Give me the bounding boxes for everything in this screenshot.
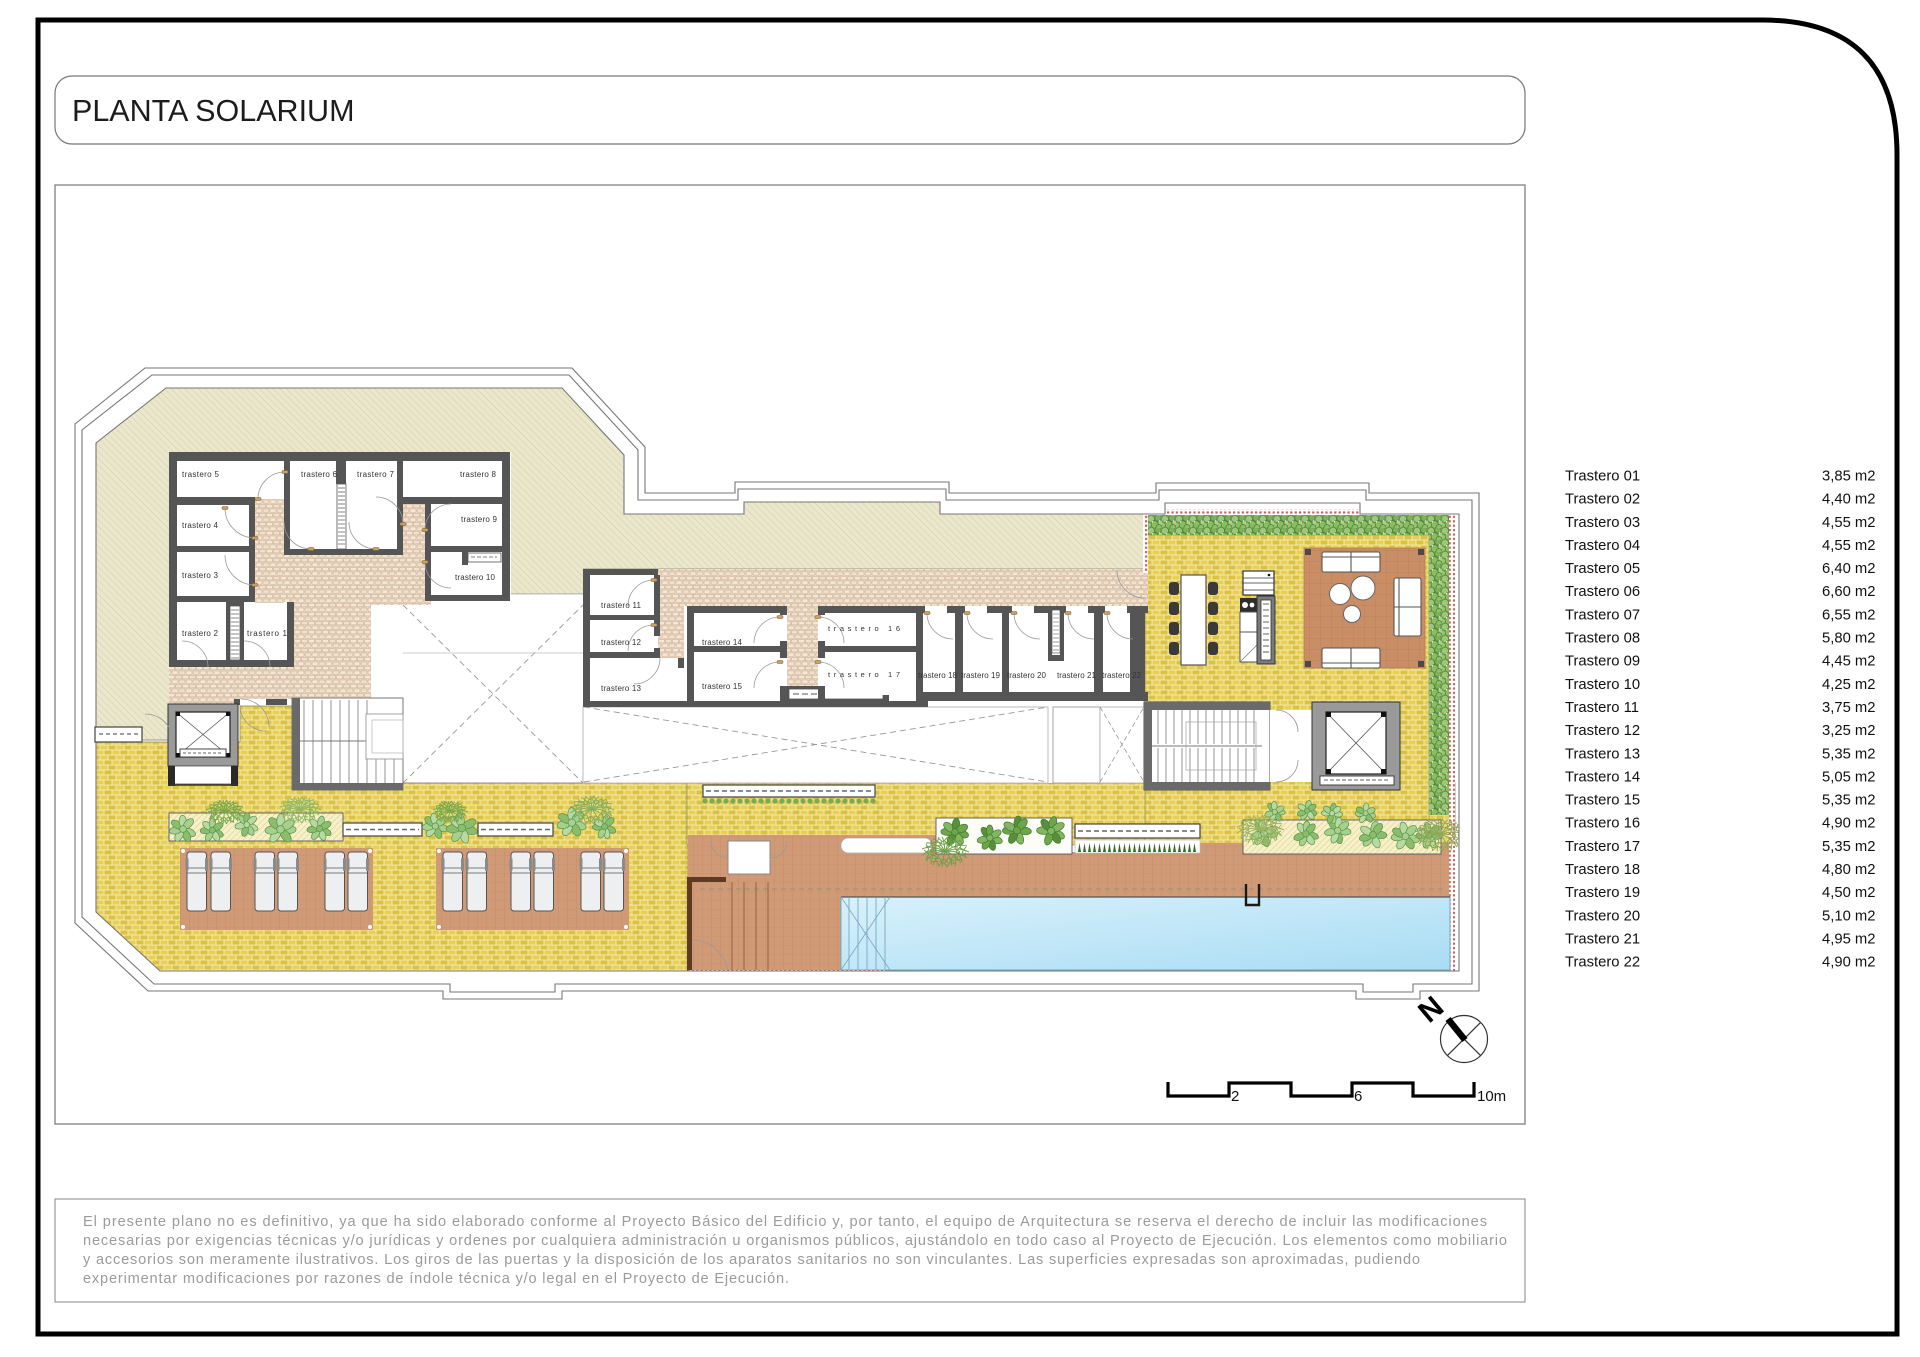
svg-text:6,40 m2: 6,40 m2 <box>1822 561 1875 577</box>
svg-text:trastero 5: trastero 5 <box>182 470 220 479</box>
svg-text:4,95 m2: 4,95 m2 <box>1822 932 1875 948</box>
svg-text:5,80 m2: 5,80 m2 <box>1822 631 1875 647</box>
svg-text:trastero 6: trastero 6 <box>301 470 338 479</box>
svg-text:trastero 8: trastero 8 <box>460 470 497 479</box>
svg-text:trastero 12: trastero 12 <box>601 638 642 647</box>
svg-text:Trastero 21: Trastero 21 <box>1565 932 1640 948</box>
svg-text:experimentar modificaciones po: experimentar modificaciones por razones … <box>83 1271 789 1287</box>
svg-text:Trastero 11: Trastero 11 <box>1565 700 1639 716</box>
svg-text:4,50 m2: 4,50 m2 <box>1822 885 1875 901</box>
svg-text:Trastero 22: Trastero 22 <box>1565 955 1640 971</box>
svg-text:Trastero 17: Trastero 17 <box>1565 839 1640 855</box>
svg-text:Trastero 09: Trastero 09 <box>1565 654 1640 670</box>
svg-text:6,60 m2: 6,60 m2 <box>1822 584 1875 600</box>
svg-text:Trastero 07: Trastero 07 <box>1565 607 1640 623</box>
svg-text:Trastero 14: Trastero 14 <box>1565 769 1640 785</box>
svg-text:4,55 m2: 4,55 m2 <box>1822 538 1875 554</box>
svg-text:trastero 4: trastero 4 <box>182 521 219 530</box>
svg-text:trastero 14: trastero 14 <box>702 638 743 647</box>
svg-text:6: 6 <box>1354 1088 1362 1105</box>
svg-text:4,90 m2: 4,90 m2 <box>1822 816 1875 832</box>
svg-text:Trastero 20: Trastero 20 <box>1565 908 1640 924</box>
svg-text:Trastero 03: Trastero 03 <box>1565 515 1640 531</box>
svg-text:trastero 19: trastero 19 <box>961 671 1001 680</box>
svg-text:trastero 15: trastero 15 <box>702 682 743 691</box>
svg-text:Trastero 12: Trastero 12 <box>1565 723 1640 739</box>
svg-text:trastero 2: trastero 2 <box>182 629 219 638</box>
svg-text:Trastero 15: Trastero 15 <box>1565 793 1640 809</box>
svg-text:trastero 11: trastero 11 <box>601 601 642 610</box>
svg-text:Trastero 02: Trastero 02 <box>1565 492 1640 508</box>
svg-text:trastero 1: trastero 1 <box>247 629 288 638</box>
svg-text:Trastero 13: Trastero 13 <box>1565 746 1640 762</box>
svg-text:Trastero 01: Trastero 01 <box>1565 469 1640 485</box>
svg-text:10m: 10m <box>1477 1088 1506 1105</box>
svg-text:5,05 m2: 5,05 m2 <box>1822 769 1875 785</box>
svg-text:Trastero 05: Trastero 05 <box>1565 561 1640 577</box>
svg-text:trastero 10: trastero 10 <box>455 573 496 582</box>
svg-text:trastero 9: trastero 9 <box>461 515 498 524</box>
svg-text:4,40 m2: 4,40 m2 <box>1822 492 1875 508</box>
svg-text:4,90 m2: 4,90 m2 <box>1822 955 1875 971</box>
svg-text:4,45 m2: 4,45 m2 <box>1822 654 1875 670</box>
svg-text:5,35 m2: 5,35 m2 <box>1822 839 1875 855</box>
svg-text:4,55 m2: 4,55 m2 <box>1822 515 1875 531</box>
svg-text:6,55 m2: 6,55 m2 <box>1822 607 1875 623</box>
svg-text:Trastero 10: Trastero 10 <box>1565 677 1640 693</box>
svg-text:El presente plano no es defini: El presente plano no es definitivo, ya q… <box>83 1214 1487 1230</box>
svg-text:Trastero 04: Trastero 04 <box>1565 538 1640 554</box>
svg-text:2: 2 <box>1231 1088 1239 1105</box>
svg-text:Trastero 18: Trastero 18 <box>1565 862 1640 878</box>
svg-text:trastero 7: trastero 7 <box>357 470 395 479</box>
svg-text:4,80 m2: 4,80 m2 <box>1822 862 1875 878</box>
svg-text:trastero 22: trastero 22 <box>1102 671 1142 680</box>
svg-text:necesarias por exigencias técn: necesarias por exigencias técnicas y/o j… <box>83 1233 1507 1249</box>
svg-text:3,25 m2: 3,25 m2 <box>1822 723 1875 739</box>
svg-text:4,25 m2: 4,25 m2 <box>1822 677 1875 693</box>
svg-text:Trastero 19: Trastero 19 <box>1565 885 1640 901</box>
svg-text:3,85 m2: 3,85 m2 <box>1822 469 1875 485</box>
svg-text:trastero 21: trastero 21 <box>1057 671 1097 680</box>
svg-text:5,35 m2: 5,35 m2 <box>1822 793 1875 809</box>
svg-text:trastero 18: trastero 18 <box>918 671 958 680</box>
svg-text:trastero 3: trastero 3 <box>182 571 219 580</box>
svg-text:PLANTA SOLARIUM: PLANTA SOLARIUM <box>72 94 354 128</box>
svg-text:Trastero 06: Trastero 06 <box>1565 584 1640 600</box>
svg-text:5,35 m2: 5,35 m2 <box>1822 746 1875 762</box>
svg-text:3,75 m2: 3,75 m2 <box>1822 700 1875 716</box>
svg-text:trastero 20: trastero 20 <box>1007 671 1047 680</box>
svg-text:Trastero 08: Trastero 08 <box>1565 631 1640 647</box>
svg-text:y accesorios son meramente ilu: y accesorios son meramente ilustrativos.… <box>83 1252 1420 1268</box>
svg-text:Trastero 16: Trastero 16 <box>1565 816 1640 832</box>
svg-text:trastero 13: trastero 13 <box>601 684 642 693</box>
svg-text:5,10 m2: 5,10 m2 <box>1822 908 1875 924</box>
